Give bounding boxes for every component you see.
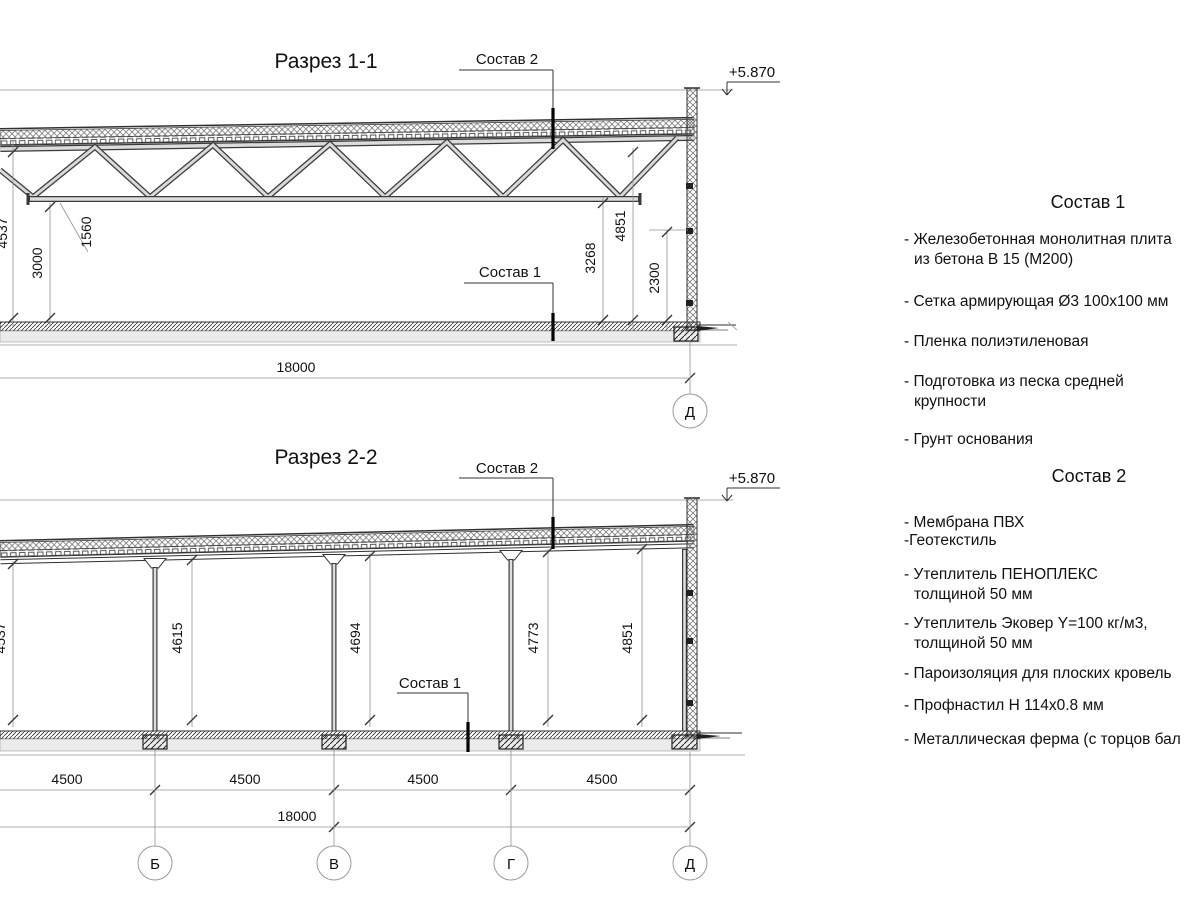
axis-letter-g: Г — [507, 856, 515, 873]
elevation-value-s2: +5.870 — [729, 470, 775, 487]
footing — [143, 735, 167, 749]
legend-item: - Пароизоляция для плоских кровель — [904, 664, 1200, 684]
wall-footing-1 — [674, 327, 698, 341]
footing — [322, 735, 346, 749]
axis-letter-d-s1: Д — [685, 404, 695, 421]
sostav1-callout-s1: Состав 1 — [479, 264, 541, 281]
elevation-mark-2: +5.870 — [722, 470, 780, 501]
section-1-1-title: Разрез 1-1 — [274, 50, 377, 73]
legend-item: - Подготовка из песка средней крупности — [904, 372, 1200, 412]
elevation-value-s1: +5.870 — [729, 64, 775, 81]
dim-4500-1: 4500 — [51, 771, 82, 787]
legend-item: - Пленка полиэтиленовая — [904, 332, 1200, 352]
callouts-2: Состав 2 Состав 1 — [397, 460, 553, 752]
overall-dim-1: 18000 Д — [0, 342, 707, 428]
section-2-2: Разрез 2-2 — [0, 446, 780, 880]
section-1-1: Разрез 1-1 — [0, 50, 780, 428]
floor-slab-2 — [0, 731, 745, 755]
bay-dimensions: 4500 4500 4500 4500 18000 — [0, 771, 695, 832]
section-2-2-title: Разрез 2-2 — [274, 446, 377, 469]
floor-slab-1 — [0, 322, 737, 345]
sostav2-callout-s1: Состав 2 — [476, 51, 538, 68]
legend-item: - Мембрана ПВХ — [904, 513, 1200, 533]
column-cap — [323, 555, 345, 565]
axis-letter-v: В — [329, 856, 339, 873]
dim-3000-s1: 3000 — [29, 247, 45, 278]
elevation-mark-1: +5.870 — [722, 64, 780, 95]
roof-deck-1 — [0, 118, 694, 149]
wall-footing-2 — [672, 735, 697, 749]
dim-4694-s2: 4694 — [347, 622, 363, 653]
blueprint-canvas: Разрез 1-1 — [0, 0, 1200, 900]
sostav2-callout-s2: Состав 2 — [476, 460, 538, 477]
sections-drawing: Разрез 1-1 — [0, 0, 1200, 900]
axis-letter-d: Д — [685, 856, 695, 873]
axis-letter-b: Б — [150, 856, 160, 873]
legend-item: - Железобетонная монолитная плита из бет… — [904, 230, 1200, 270]
columns — [144, 549, 685, 731]
roof-deck-2 — [0, 525, 694, 564]
legend-item: - Профнастил Н 114х0.8 мм — [904, 696, 1200, 716]
dim-4500-2: 4500 — [229, 771, 260, 787]
sostav1-callout-s2: Состав 1 — [399, 675, 461, 692]
dim-4615-s2: 4615 — [169, 622, 185, 653]
dim-2300-s1: 2300 — [646, 262, 662, 293]
legend-sostav1-title: Состав 1 — [1051, 192, 1126, 213]
dim-4500-3: 4500 — [407, 771, 438, 787]
dim-4537-s2: 4537 — [0, 622, 8, 653]
dim-4537-s1: 4537 — [0, 217, 10, 248]
legend-item: -Геотекстиль — [904, 531, 1200, 551]
dimensions-1-left: 4537 3000 1560 — [0, 140, 94, 327]
legend-item: - Металлическая ферма (с торцов бал — [904, 730, 1200, 750]
axes-2: Б В Г Д — [138, 750, 707, 880]
dim-1560-s1: 1560 — [78, 216, 94, 247]
dim-4851-s1: 4851 — [612, 210, 628, 241]
legend-item: - Грунт основания — [904, 430, 1200, 450]
dim-18000-s1: 18000 — [277, 359, 316, 375]
dim-4851-s2: 4851 — [619, 622, 635, 653]
legend-item: - Сетка армирующая Ø3 100х100 мм — [904, 292, 1200, 312]
legend-sostav2-title: Состав 2 — [1052, 466, 1127, 487]
dim-18000-s2: 18000 — [278, 808, 317, 824]
legend-item: - Утеплитель ПЕНОПЛЕКС толщиной 50 мм — [904, 565, 1200, 605]
footing — [499, 735, 523, 749]
dim-4773-s2: 4773 — [525, 622, 541, 653]
dim-4500-4: 4500 — [586, 771, 617, 787]
column-cap — [144, 559, 166, 569]
column-cap — [500, 551, 522, 561]
dim-3268-s1: 3268 — [582, 242, 598, 273]
dimensions-2-heights: 4537 4615 4694 4773 4851 — [0, 544, 647, 727]
legend-item: - Утеплитель Эковер Y=100 кг/м3, толщино… — [904, 614, 1200, 654]
